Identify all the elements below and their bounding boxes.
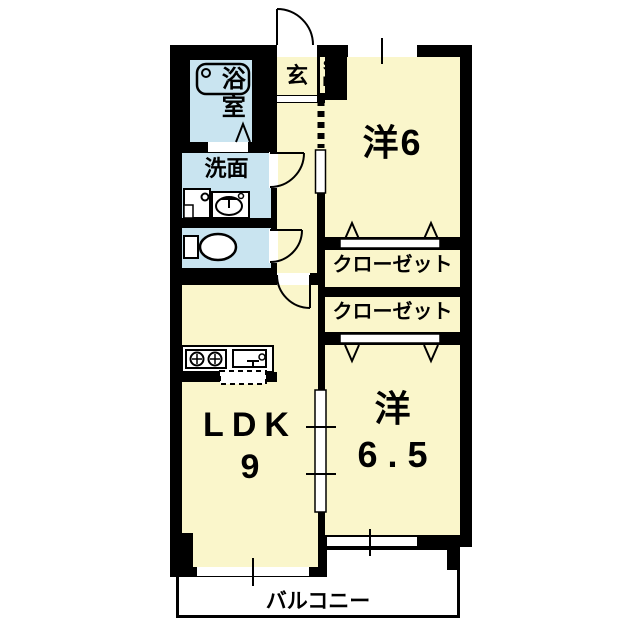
entrance-step xyxy=(277,95,317,103)
balcony-label: バルコニー xyxy=(176,591,460,613)
western65-label: 洋 xyxy=(325,390,460,428)
entrance-label: 玄 xyxy=(277,64,317,87)
floor-plan: 浴室 洗面 玄 S B 洋6 クローゼット クローゼット LDK 9 洋 6.5… xyxy=(0,0,640,640)
right-wall-foot xyxy=(447,547,460,570)
closet1-label: クローゼット xyxy=(325,255,460,276)
closet2-label: クローゼット xyxy=(325,302,460,323)
western65-size-label: 6.5 xyxy=(325,436,460,474)
ldk-label: LDK xyxy=(182,408,318,444)
bath-label: 浴室 xyxy=(218,66,243,122)
entrance-door-swing-icon xyxy=(277,9,313,45)
ldk-size-label: 9 xyxy=(182,450,318,486)
shoebox-label-b: B xyxy=(318,74,337,89)
western6-label: 洋6 xyxy=(325,124,460,162)
toilet-room xyxy=(182,228,271,268)
hallway xyxy=(277,103,325,273)
shoebox-label-s: S xyxy=(318,58,337,73)
washroom-label: 洗面 xyxy=(182,157,271,180)
